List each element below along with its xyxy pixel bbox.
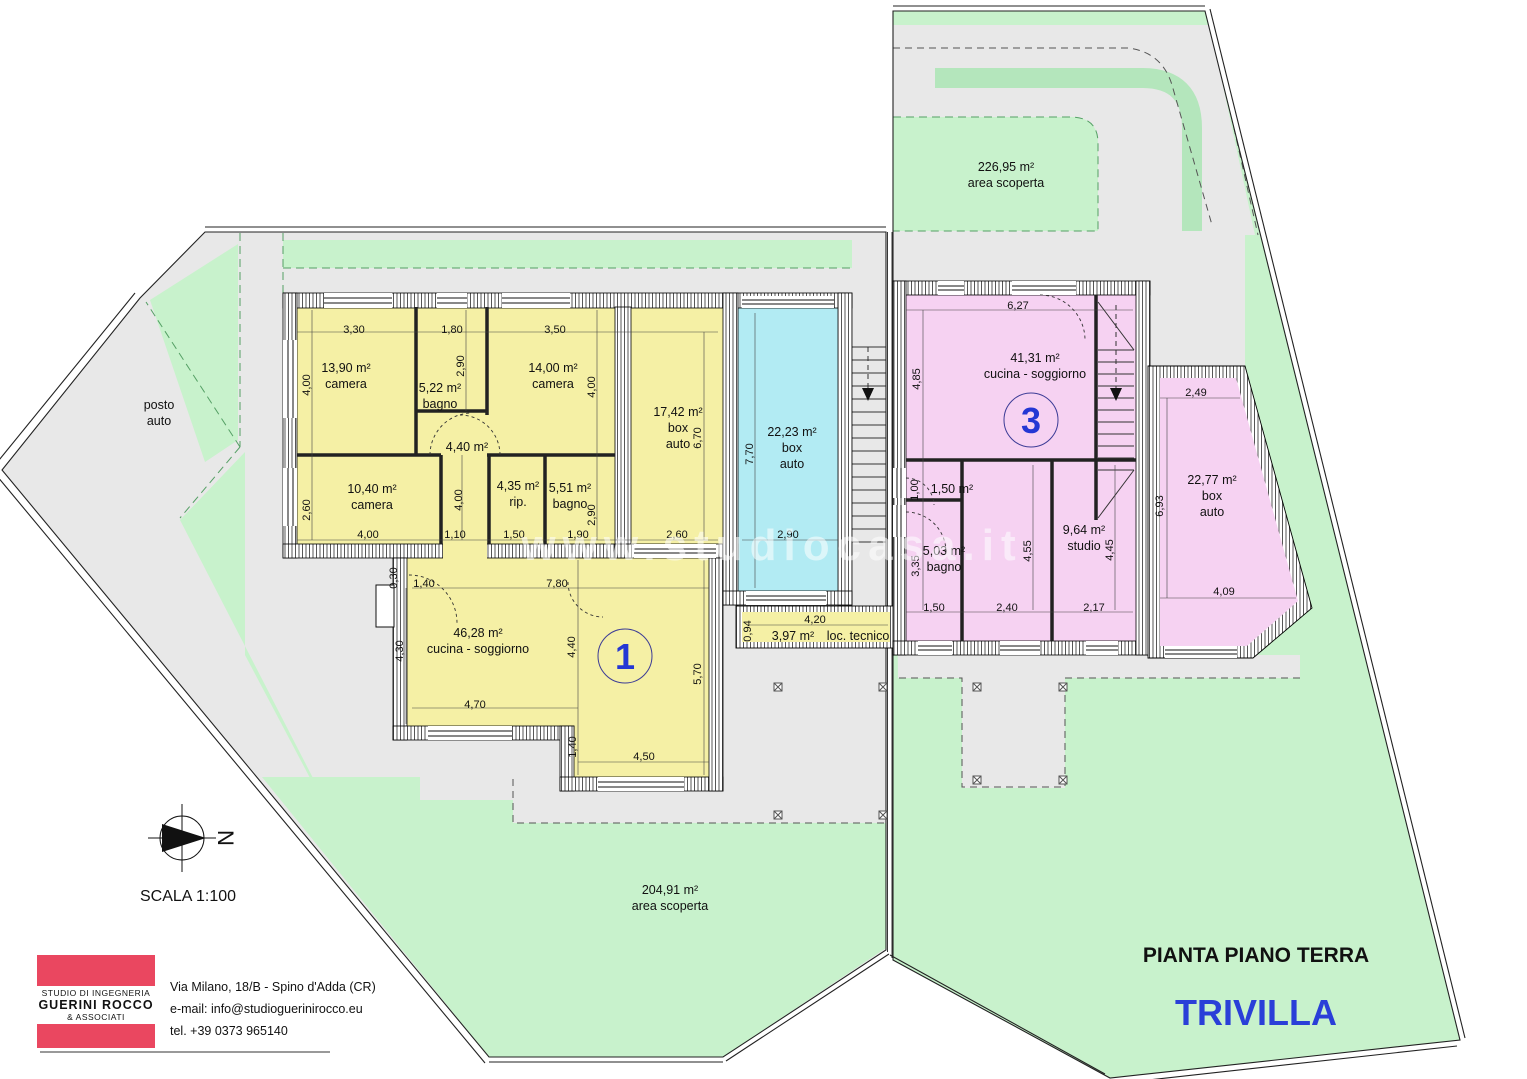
dimension-label: 4,00 (586, 376, 598, 397)
dimension-label: 4,20 (804, 614, 825, 626)
building-unit3 (893, 281, 1150, 655)
dimension-label: 3,50 (544, 324, 565, 336)
dimension-label: 3,30 (343, 324, 364, 336)
room-label: posto (144, 398, 175, 412)
room-label: 5,22 m² (419, 381, 461, 395)
site-post-marker (1059, 683, 1067, 691)
scale-label: SCALA 1:100 (140, 888, 236, 905)
dimension-label: 0,94 (742, 620, 754, 641)
room-label: auto (147, 414, 171, 428)
site-post-marker (879, 811, 887, 819)
dimension-label: 1,10 (444, 529, 465, 541)
north-lawn-strip (283, 240, 852, 268)
dimension-label: 1,50 (923, 602, 944, 614)
watermark-text: www.studiocasa.it (520, 521, 1022, 570)
room-label: camera (351, 498, 393, 512)
dimension-label: 2,17 (1083, 602, 1104, 614)
room-label: area scoperta (632, 899, 708, 913)
room-label: 17,42 m² (653, 405, 702, 419)
room-label: 22,23 m² (767, 425, 816, 439)
room-label: 13,90 m² (321, 361, 370, 375)
room-label: 46,28 m² (453, 626, 502, 640)
site-post-marker (973, 683, 981, 691)
room-label: box (1202, 489, 1223, 503)
patio-extension (962, 678, 1065, 788)
floor-plan-canvas: 3,301,803,504,002,904,006,707,702,604,00… (0, 0, 1527, 1079)
room-label: 226,95 m² (978, 160, 1034, 174)
unit3-rooms-fill (906, 295, 1136, 641)
room-label: camera (532, 377, 574, 391)
dimension-label: 4,45 (1104, 539, 1116, 560)
room-label: cucina - soggiorno (984, 367, 1086, 381)
room-label: 204,91 m² (642, 883, 698, 897)
dimension-label: 7,70 (744, 443, 756, 464)
site-post-marker (879, 683, 887, 691)
room-label: camera (325, 377, 367, 391)
room-label: 9,64 m² (1063, 523, 1105, 537)
room-label: rip. (509, 495, 526, 509)
room-label: area scoperta (968, 176, 1044, 190)
studio-name-line1: STUDIO DI INGEGNERIA (42, 988, 151, 998)
north-letter: N (213, 830, 238, 846)
studio-email: e-mail: info@studioguerinirocco.eu (170, 1002, 363, 1016)
room-label: 1,50 m² (931, 482, 973, 496)
room-label: 14,00 m² (528, 361, 577, 375)
front-garden (893, 117, 1098, 231)
unit-number: 1 (615, 636, 635, 677)
dimension-label: 2,49 (1185, 387, 1206, 399)
dimension-label: 1,40 (413, 578, 434, 590)
bay-window (376, 585, 394, 627)
room-label: auto (666, 437, 690, 451)
room-label: 4,40 m² (446, 440, 488, 454)
dimension-label: 4,40 (566, 636, 578, 657)
project-title: TRIVILLA (1175, 992, 1337, 1033)
studio-address: Via Milano, 18/B - Spino d'Adda (CR) (170, 980, 376, 994)
dimension-label: 4,70 (464, 699, 485, 711)
dimension-label: 0,30 (388, 567, 400, 588)
drawing-title: PIANTA PIANO TERRA (1143, 944, 1369, 967)
site-post-marker (774, 683, 782, 691)
studio-phone: tel. +39 0373 965140 (170, 1024, 288, 1038)
room-label: box (782, 441, 803, 455)
room-label: auto (780, 457, 804, 471)
room-label: bagno (423, 397, 458, 411)
logo-bar-top (37, 955, 155, 986)
room-label: 3,97 m² (772, 629, 814, 643)
studio-name-line3: & ASSOCIATI (67, 1012, 125, 1022)
dimension-label: 6,70 (692, 427, 704, 448)
room-label: 5,51 m² (549, 481, 591, 495)
dimension-label: 6,93 (1154, 495, 1166, 516)
site-post-marker (774, 811, 782, 819)
floor-plan-page: 3,301,803,504,002,904,006,707,702,604,00… (0, 0, 1527, 1079)
room-label: 4,35 m² (497, 479, 539, 493)
room-label: auto (1200, 505, 1224, 519)
unit-number: 3 (1021, 400, 1041, 441)
dimension-label: 2,60 (301, 499, 313, 520)
dimension-label: 4,55 (1022, 540, 1034, 561)
dimension-label: 4,00 (301, 374, 313, 395)
room-label: 10,40 m² (347, 482, 396, 496)
dimension-label: 4,30 (394, 640, 406, 661)
room-label: 22,77 m² (1187, 473, 1236, 487)
site-post-marker (1059, 776, 1067, 784)
dimension-label: 1,80 (441, 324, 462, 336)
studio-name-line2: GUERINI ROCCO (38, 998, 153, 1012)
dimension-label: 4,00 (453, 489, 465, 510)
dimension-label: 6,27 (1007, 300, 1028, 312)
room-label: box (668, 421, 689, 435)
room-label: loc. tecnico (827, 629, 890, 643)
dimension-label: 1,00 (909, 479, 921, 500)
dimension-label: 4,85 (911, 368, 923, 389)
dimension-label: 1,40 (567, 736, 579, 757)
corridor-opening (443, 543, 487, 559)
logo-bar-bottom (37, 1024, 155, 1048)
dimension-label: 7,80 (546, 578, 567, 590)
dimension-label: 2,90 (455, 355, 467, 376)
site-post-marker (973, 776, 981, 784)
dimension-label: 4,00 (357, 529, 378, 541)
room-label: 41,31 m² (1010, 351, 1059, 365)
dimension-label: 5,70 (692, 663, 704, 684)
dimension-label: 2,40 (996, 602, 1017, 614)
dimension-label: 4,50 (633, 751, 654, 763)
room-label: bagno (553, 497, 588, 511)
room-label: cucina - soggiorno (427, 642, 529, 656)
room-label: studio (1067, 539, 1100, 553)
dimension-label: 4,09 (1213, 586, 1234, 598)
